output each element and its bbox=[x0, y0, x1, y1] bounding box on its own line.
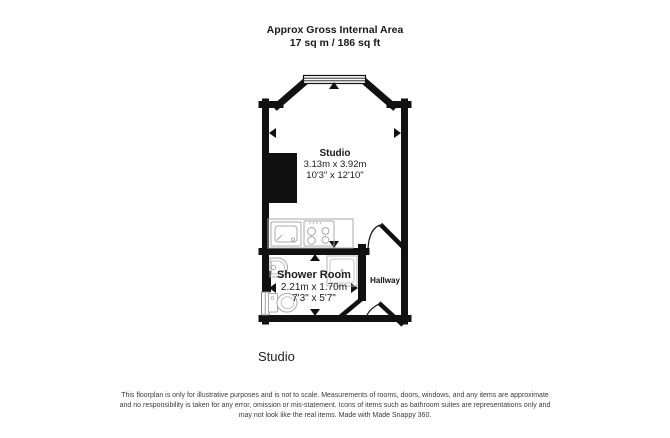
hallway-room-label: Hallway bbox=[366, 276, 404, 285]
disclaimer-line: This floorplan is only for illustrative … bbox=[0, 391, 670, 401]
shower-room-label: Shower Room 2.21m x 1.70m 7'3" x 5'7" bbox=[254, 270, 374, 305]
disclaimer-text: This floorplan is only for illustrative … bbox=[0, 391, 670, 421]
room-name: Studio bbox=[270, 148, 400, 159]
room-dimensions-metric: 2.21m x 1.70m bbox=[254, 282, 374, 294]
disclaimer-line: and no responsibility is taken for any e… bbox=[0, 401, 670, 411]
room-dimensions-metric: 3.13m x 3.92m bbox=[270, 159, 400, 170]
disclaimer-line: may not look like the real items. Made w… bbox=[0, 411, 670, 421]
floorplan-drawing bbox=[0, 0, 670, 438]
room-dimensions-imperial: 7'3" x 5'7" bbox=[254, 293, 374, 305]
room-name: Shower Room bbox=[254, 270, 374, 282]
kitchen-sink-icon bbox=[271, 222, 301, 246]
plan-caption: Studio bbox=[258, 349, 295, 364]
studio-room-label: Studio 3.13m x 3.92m 10'3" x 12'10" bbox=[270, 148, 400, 181]
window-icon bbox=[304, 76, 366, 84]
room-dimensions-imperial: 10'3" x 12'10" bbox=[270, 170, 400, 181]
floorplan-page: Approx Gross Internal Area 17 sq m / 186… bbox=[0, 0, 670, 438]
hob-icon bbox=[304, 221, 334, 246]
